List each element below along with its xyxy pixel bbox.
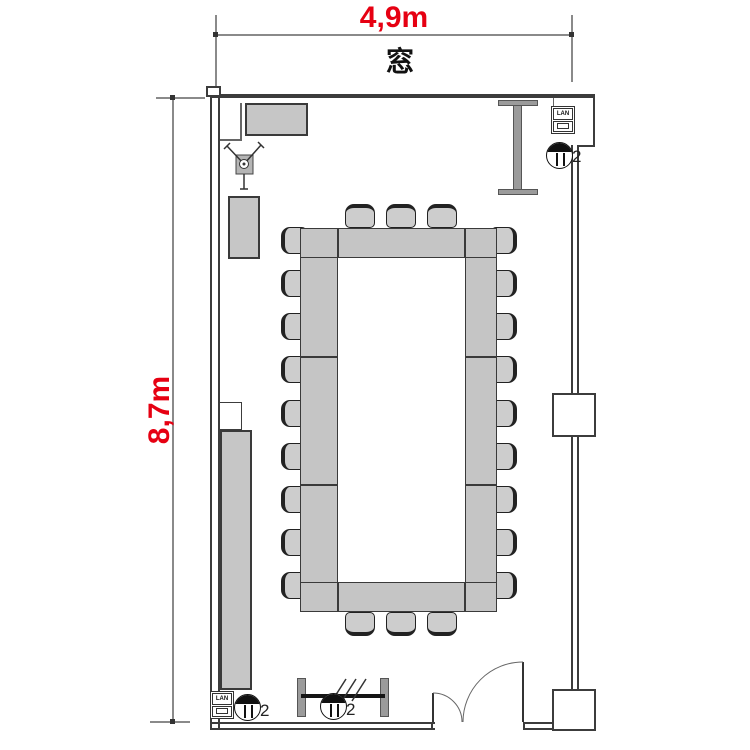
dim-tick-top: [156, 97, 205, 99]
screen-board-bottom-cap: [498, 189, 538, 195]
width-dimension-label: 4,9m: [329, 1, 459, 35]
side-cabinet-upper: [228, 196, 260, 259]
chair: [386, 204, 416, 228]
corner-pillar-top-left: [206, 86, 221, 97]
lan-wall-plate: LAN: [210, 691, 234, 719]
outlet-icon: [212, 706, 232, 718]
wall-bottom-left-outer: [210, 728, 435, 730]
outlet-icon: [553, 121, 573, 133]
dim-dot: [170, 719, 175, 724]
wall-left-outer: [210, 94, 212, 730]
power-outlet-icon: [546, 142, 573, 169]
outlet-count: 2: [572, 147, 581, 167]
wall-left-inner: [218, 94, 220, 730]
height-dimension-label: 8,7m: [143, 345, 177, 475]
chair: [427, 612, 457, 636]
column-bottom-right: [552, 689, 596, 731]
top-cabinet: [245, 103, 308, 136]
door-jamb-left: [431, 722, 433, 730]
chair: [345, 612, 375, 636]
line-art-overlay: [0, 0, 750, 750]
entrance-door-icon: [433, 662, 523, 722]
dim-extension-left: [215, 15, 217, 87]
table-seam: [465, 484, 497, 486]
lan-label: LAN: [553, 108, 573, 120]
outlet-count: 2: [260, 701, 269, 721]
dim-dot: [213, 32, 218, 37]
table-seam: [300, 356, 338, 358]
dim-extension-right: [571, 15, 573, 82]
table-seam: [337, 582, 339, 612]
side-cabinet-long: [220, 430, 252, 690]
chair: [386, 612, 416, 636]
dim-dot: [569, 32, 574, 37]
table-seam: [464, 228, 466, 258]
table-left-column: [300, 257, 338, 583]
wall-step-left: [219, 402, 242, 430]
lan-label: LAN: [212, 693, 232, 705]
table-bottom-band: [300, 582, 497, 612]
dim-dot: [170, 95, 175, 100]
table-right-column: [465, 257, 497, 583]
power-outlet-icon: [320, 693, 347, 720]
lan-wall-plate: LAN: [551, 106, 575, 134]
screen-board-bar: [513, 105, 522, 190]
table-seam: [300, 484, 338, 486]
wall-bottom-left-inner: [210, 722, 435, 724]
wall-alcove-vertical: [593, 96, 595, 147]
table-top-band: [300, 228, 497, 258]
counter-line: [240, 103, 242, 141]
counter-line: [220, 139, 242, 141]
chair: [427, 204, 457, 228]
table-seam: [465, 356, 497, 358]
table-seam: [337, 228, 339, 258]
projector-tripod-icon: [224, 142, 264, 189]
power-outlet-icon: [234, 694, 261, 721]
wall-top: [211, 94, 595, 98]
chair: [345, 204, 375, 228]
window-label: 窓: [370, 40, 430, 80]
column-mid-right: [552, 393, 596, 437]
table-seam: [464, 582, 466, 612]
door-jamb-right: [523, 722, 525, 730]
outlet-count: 2: [346, 700, 355, 720]
floor-plan-canvas: 4,9m 窓 8,7m LAN: [0, 0, 750, 750]
